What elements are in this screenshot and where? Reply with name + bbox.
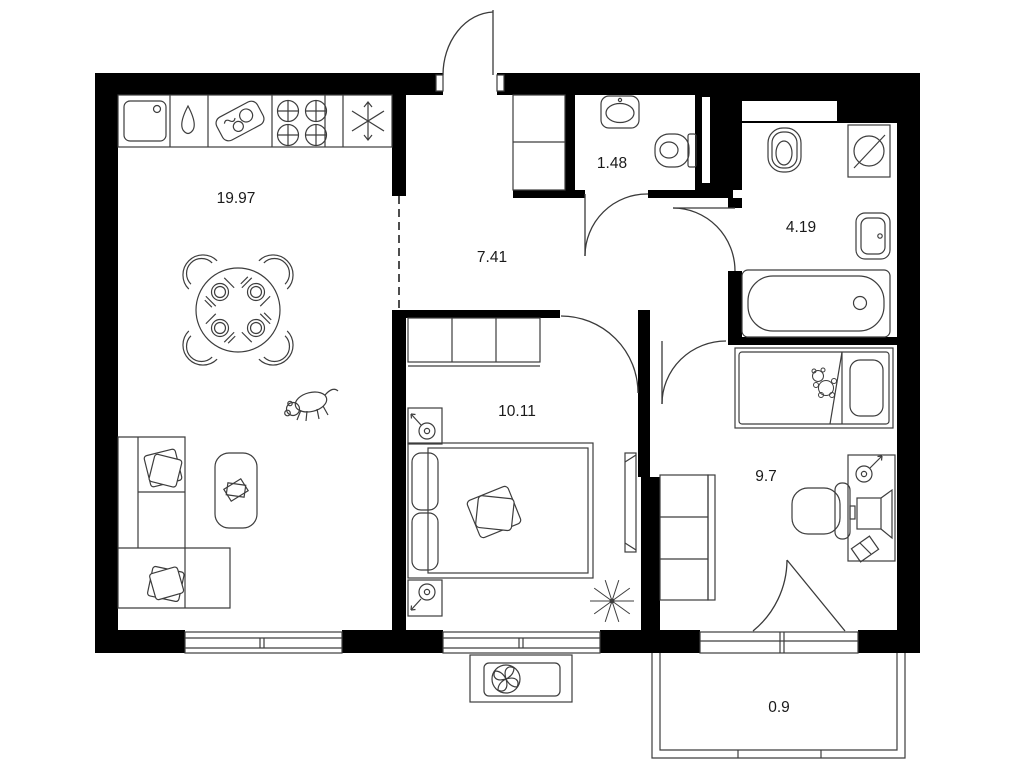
pillow-icon	[147, 566, 185, 602]
room-label-toilet: 1.48	[597, 155, 627, 172]
balcony-door-window-icon	[700, 632, 858, 653]
toilet-icon	[655, 134, 696, 167]
room-label-bedroom: 10.11	[498, 403, 536, 420]
entrance-door-icon	[436, 10, 504, 91]
wardrobe-icon	[660, 475, 715, 600]
bathroom-sink-icon	[856, 213, 890, 259]
room-label-bathroom: 4.19	[786, 219, 816, 236]
floor-plan: 19.97 7.41 1.48 4.19 10.11 9.7 0.9	[0, 0, 1018, 768]
washing-machine-icon	[848, 125, 890, 177]
desk-chair-icon	[792, 483, 850, 539]
room-label-room: 9.7	[755, 468, 777, 485]
desk-icon	[848, 455, 895, 562]
duvet-pillow-icon	[466, 485, 522, 539]
cutting-board-icon	[214, 99, 267, 144]
monitor-icon	[850, 490, 892, 538]
toilet-icon	[768, 128, 801, 172]
kitchen-sink-icon	[124, 101, 166, 141]
corner-sofa-icon	[118, 437, 230, 608]
fridge-snowflake-icon	[352, 102, 384, 140]
bathtub-icon	[742, 270, 890, 337]
water-drop-icon	[182, 106, 194, 134]
dining-table-icon	[175, 247, 302, 374]
single-bed-icon	[735, 348, 893, 428]
book-icon	[224, 479, 248, 501]
room-label-kitchen-living: 19.97	[217, 190, 256, 207]
wardrobe-icon	[408, 318, 540, 366]
window-icon	[185, 632, 342, 653]
wc-sink-icon	[601, 96, 639, 128]
balcony-door-arc-icon	[753, 560, 845, 631]
coffee-table-icon	[215, 453, 257, 528]
plant-icon	[590, 580, 634, 622]
stove-burners-icon	[278, 101, 327, 146]
room-label-hallway: 7.41	[477, 249, 507, 266]
window-icon	[443, 632, 600, 653]
dog-icon	[285, 389, 338, 421]
double-bed-icon	[408, 443, 593, 578]
teddy-bear-icon	[812, 368, 837, 398]
hall-closet-icon	[513, 95, 565, 190]
tv-console-icon	[625, 453, 636, 552]
floor-plan-canvas: 19.97 7.41 1.48 4.19 10.11 9.7 0.9	[0, 0, 1018, 768]
room-label-balcony: 0.9	[768, 699, 790, 716]
door-arc-icon	[662, 341, 726, 404]
vent-shaft	[742, 101, 837, 121]
nightstand-lamp-icon	[408, 580, 442, 616]
wall-slot	[702, 97, 710, 183]
pillow-icon	[144, 449, 183, 488]
book-icon	[851, 536, 878, 562]
desk-lamp-icon	[856, 456, 882, 482]
door-arc-icon	[561, 316, 638, 393]
nightstand-lamp-icon	[408, 408, 442, 444]
door-arc-icon	[673, 208, 735, 271]
door-arc-icon	[585, 194, 648, 256]
air-conditioner-icon	[470, 655, 572, 702]
